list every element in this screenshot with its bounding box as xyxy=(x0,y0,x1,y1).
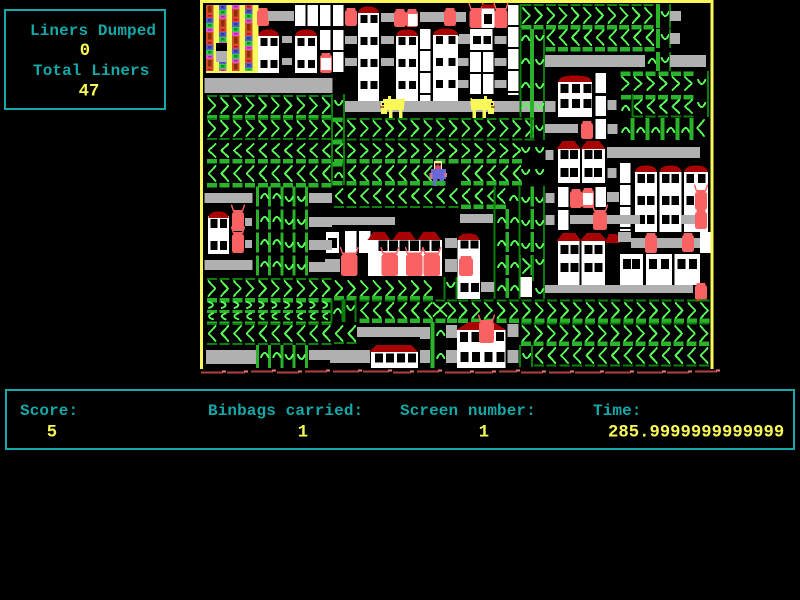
svg-text:Liners Dumped: Liners Dumped xyxy=(30,22,156,40)
svg-text:1: 1 xyxy=(298,424,308,443)
svg-text:Screen number:: Screen number: xyxy=(400,402,536,420)
svg-text:5: 5 xyxy=(47,424,57,443)
svg-text:47: 47 xyxy=(79,83,100,102)
svg-text:Binbags carried:: Binbags carried: xyxy=(208,402,363,420)
svg-text:285.9999999999999: 285.9999999999999 xyxy=(608,424,784,443)
svg-text:Score:: Score: xyxy=(20,402,78,420)
svg-text:0: 0 xyxy=(80,42,90,61)
svg-text:Time:: Time: xyxy=(593,402,642,420)
svg-text:1: 1 xyxy=(479,424,489,443)
svg-text:Total Liners: Total Liners xyxy=(33,62,149,80)
